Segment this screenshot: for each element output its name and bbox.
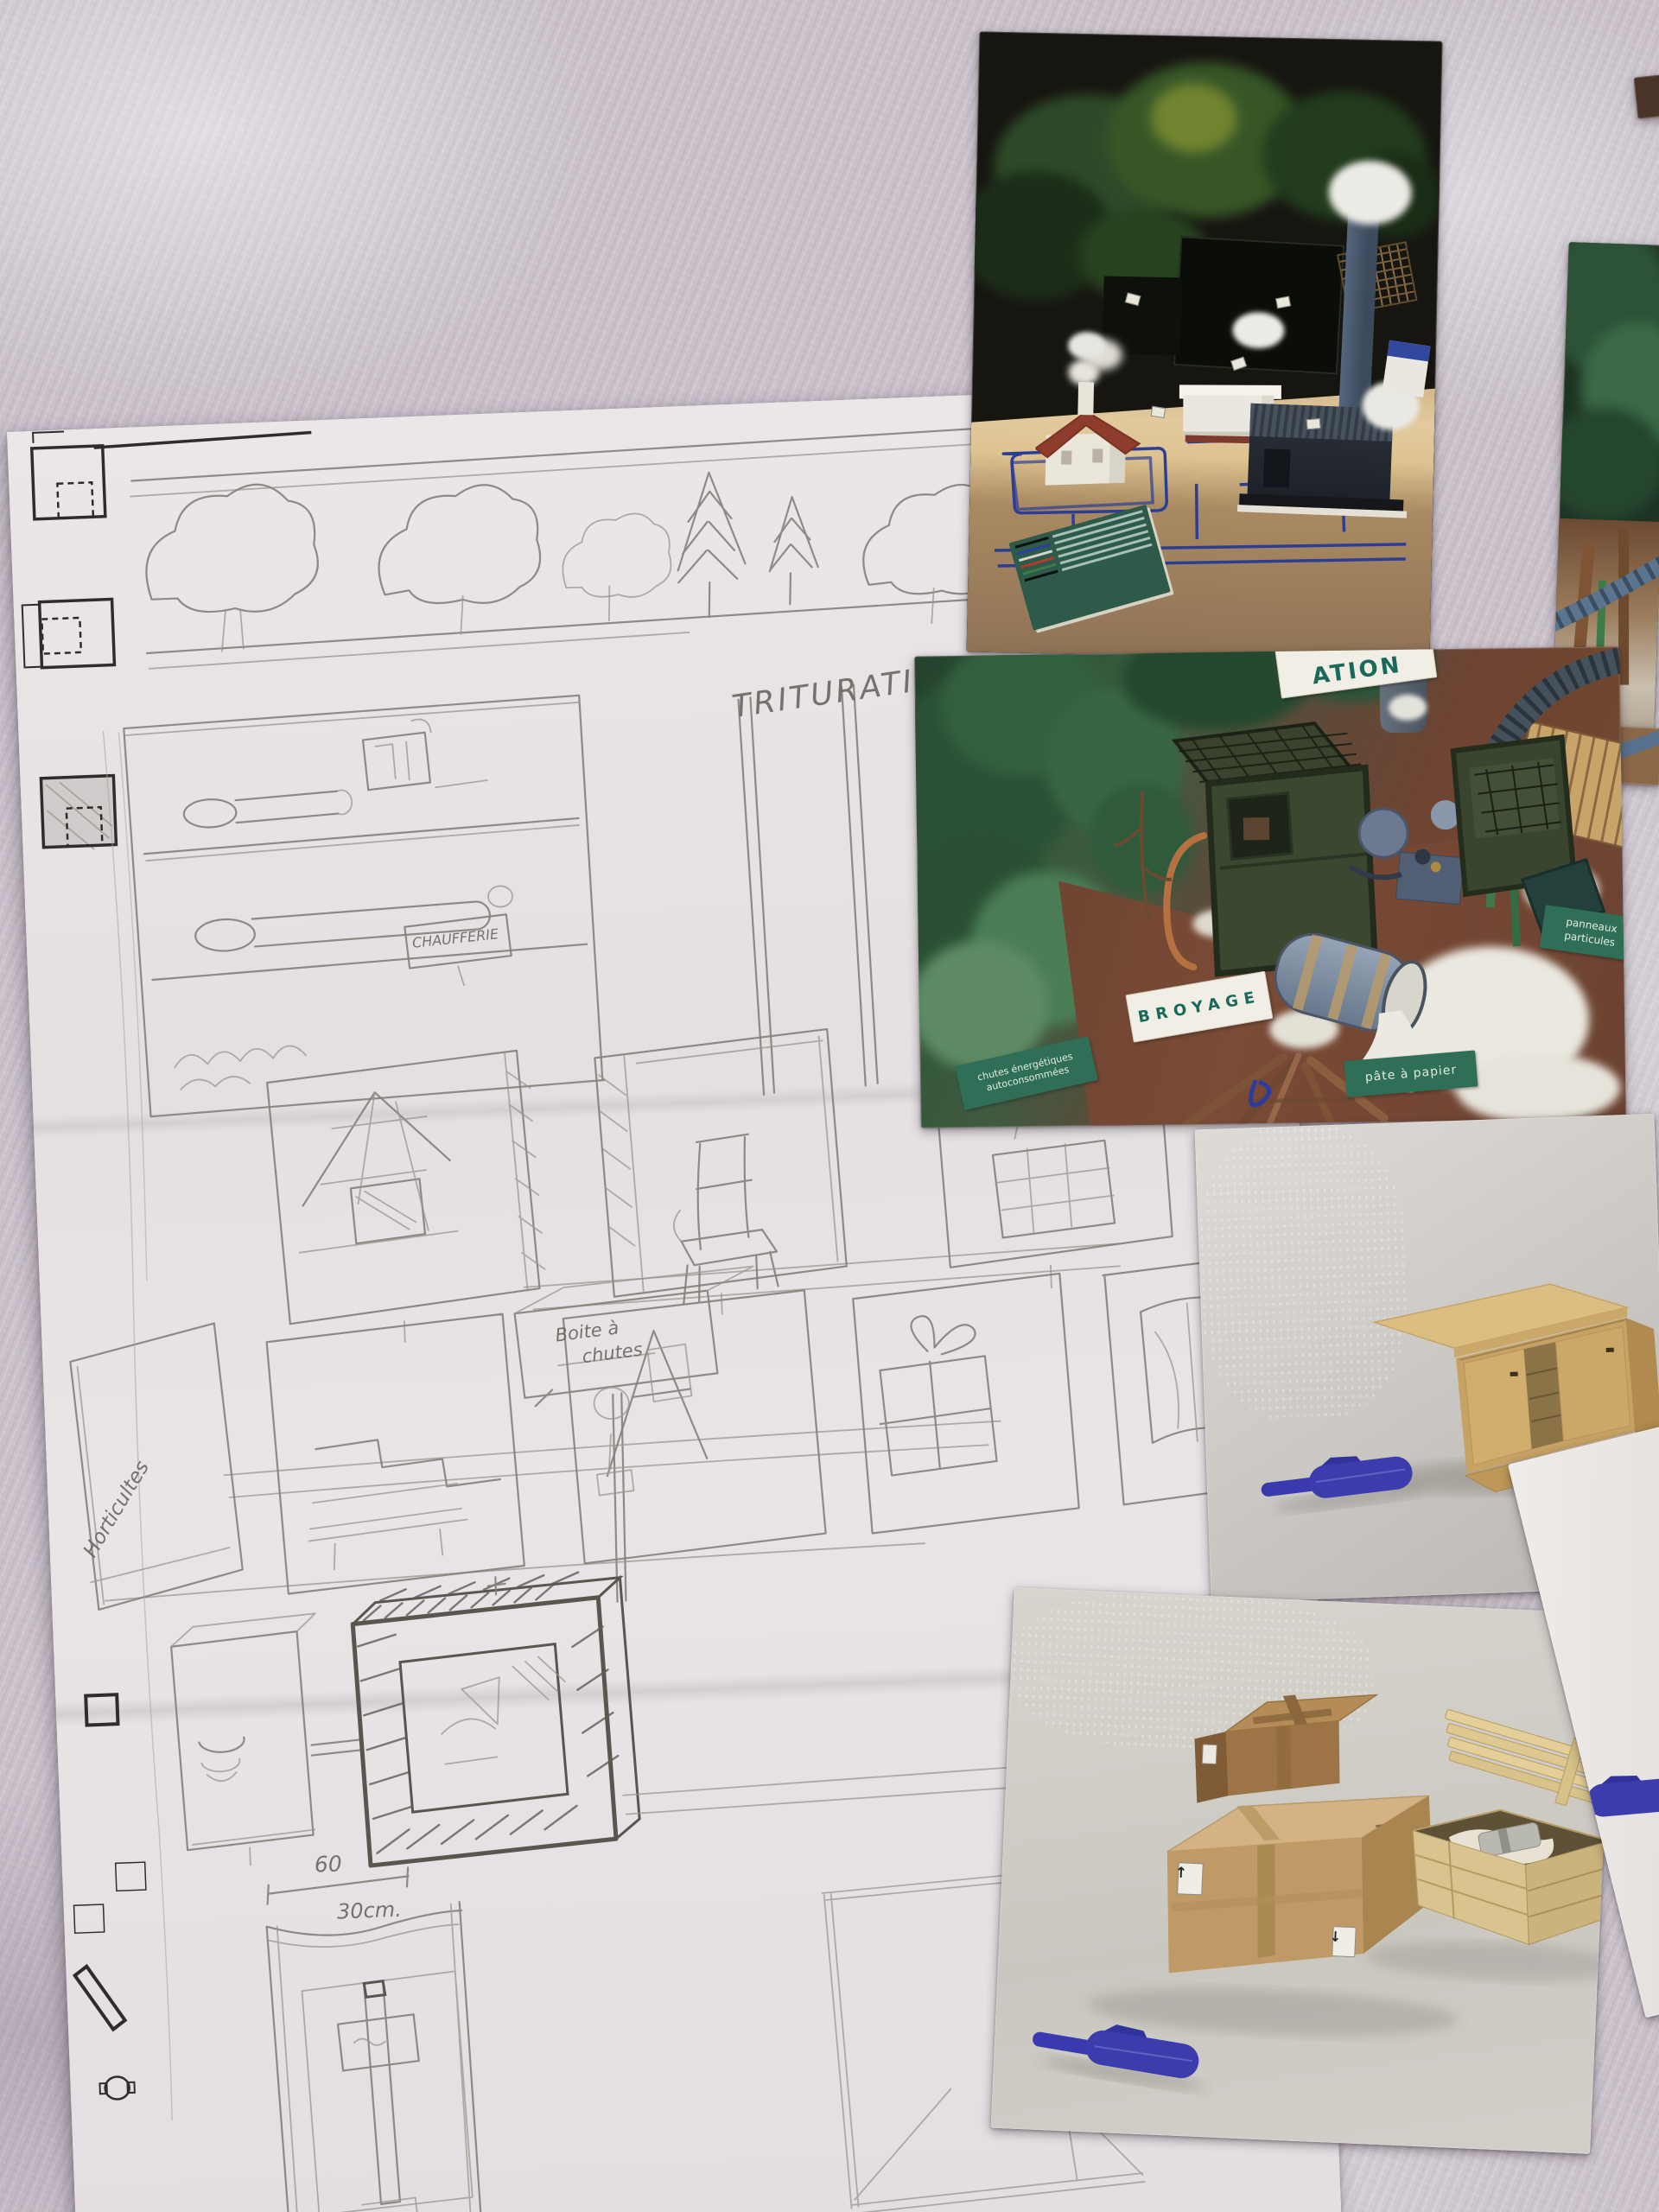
- photo-corner-dark: [1634, 74, 1659, 118]
- photo-factory-diorama: [967, 31, 1443, 661]
- margin-small-square-icon: [74, 1904, 105, 1933]
- margin-shaded-square-icon: [41, 776, 116, 851]
- photo-broyage-machine: ATION BROYAGE chutes énergétiques autoco…: [914, 646, 1626, 1128]
- photo-of-sketch-and-prints: TRITURATION CHAUFFERIE Boite à chutes Ho…: [0, 0, 1659, 2212]
- display-box-chair-sketch: [594, 1029, 848, 1307]
- margin-bold-square-icon: [86, 1694, 118, 1725]
- margin-small-shaded-square-icon: [116, 1862, 146, 1891]
- margin-diagonal-bar-icon: [74, 1965, 125, 2031]
- mini-label-tag: [1306, 418, 1321, 429]
- boxes-and-crate-drawing: [991, 1587, 1614, 2154]
- margin-square-dashed-icon: [32, 446, 105, 519]
- paper-fold-lines: [103, 730, 181, 2121]
- display-box-gift-sketch: [852, 1273, 1079, 1533]
- miniature-package: [1382, 340, 1430, 397]
- margin-circle-symbol-icon: [99, 2076, 135, 2101]
- broyage-sign-text: BROYAGE: [1136, 988, 1262, 1027]
- down-arrow-icon: ↓: [1329, 1928, 1341, 1945]
- margin-square-sidepanel-icon: [22, 599, 115, 668]
- right-hopper: [1453, 737, 1605, 934]
- display-box-horticoles-sketch: [69, 1323, 244, 1611]
- pen-cap: [1258, 1446, 1426, 1516]
- depth-dimension-label: 30cm.: [336, 1897, 402, 1924]
- mini-label-tag: [1151, 406, 1166, 418]
- up-arrow-icon: ↑: [1174, 1865, 1187, 1883]
- tree-frieze-sketch: [129, 422, 1097, 670]
- pate-sign-text: pâte à papier: [1364, 1063, 1458, 1084]
- width-dimension-label: 60: [314, 1851, 342, 1877]
- small-cardboard-box: [1192, 1687, 1376, 1810]
- vitrine-cup-sketch: [170, 1612, 365, 1868]
- twigs: [1113, 791, 1172, 922]
- miniature-house: [1034, 400, 1148, 498]
- photo-miniature-boxes: ↑ ↓: [991, 1587, 1614, 2154]
- display-box-house-sketch: [266, 1050, 547, 1325]
